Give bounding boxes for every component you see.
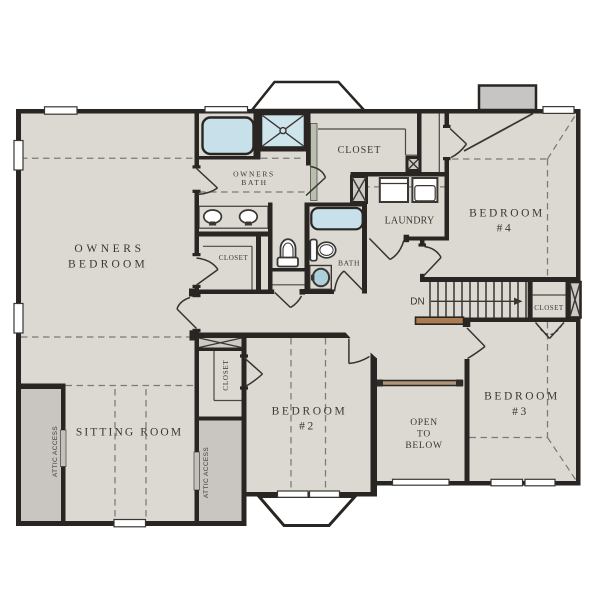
svg-text:#3: #3 [512, 406, 529, 418]
svg-text:BEDROOM: BEDROOM [68, 259, 148, 271]
svg-text:BATH: BATH [241, 178, 267, 187]
svg-text:BEDROOM: BEDROOM [272, 406, 348, 418]
svg-text:BELOW: BELOW [405, 441, 442, 451]
svg-text:CLOSET: CLOSET [222, 359, 230, 390]
svg-text:CLOSET: CLOSET [219, 254, 249, 262]
svg-text:ATTIC ACCESS: ATTIC ACCESS [52, 426, 59, 478]
svg-text:OPEN: OPEN [410, 418, 438, 428]
svg-text:BEDROOM: BEDROOM [484, 391, 560, 403]
svg-text:OWNERS: OWNERS [74, 243, 144, 255]
svg-text:ATTIC ACCESS: ATTIC ACCESS [203, 447, 210, 499]
svg-text:LAUNDRY: LAUNDRY [385, 216, 435, 227]
svg-text:CLOSET: CLOSET [338, 145, 382, 156]
svg-text:TO: TO [417, 430, 431, 440]
svg-text:#2: #2 [299, 421, 316, 433]
svg-text:CLOSET: CLOSET [534, 304, 564, 312]
svg-text:SITTING ROOM: SITTING ROOM [76, 427, 183, 439]
svg-text:#4: #4 [497, 223, 514, 235]
svg-text:DN: DN [410, 297, 424, 308]
svg-text:BEDROOM: BEDROOM [469, 208, 545, 220]
svg-text:BATH: BATH [338, 259, 360, 268]
